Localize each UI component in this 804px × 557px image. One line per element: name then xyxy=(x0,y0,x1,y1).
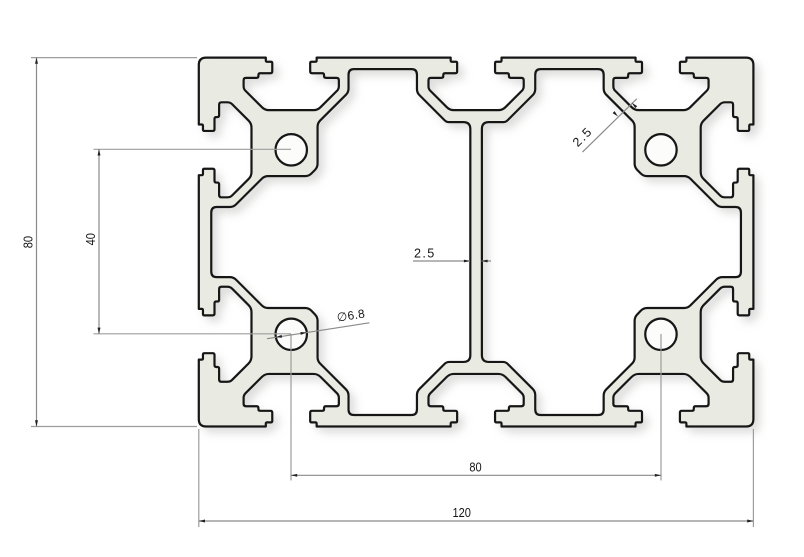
svg-text:120: 120 xyxy=(452,505,471,520)
svg-text:40: 40 xyxy=(83,233,98,246)
svg-text:2.5: 2.5 xyxy=(570,124,595,149)
svg-text:80: 80 xyxy=(469,459,482,474)
svg-text:80: 80 xyxy=(21,236,36,249)
svg-text:2.5: 2.5 xyxy=(414,247,436,261)
svg-text:∅6.8: ∅6.8 xyxy=(336,306,366,324)
